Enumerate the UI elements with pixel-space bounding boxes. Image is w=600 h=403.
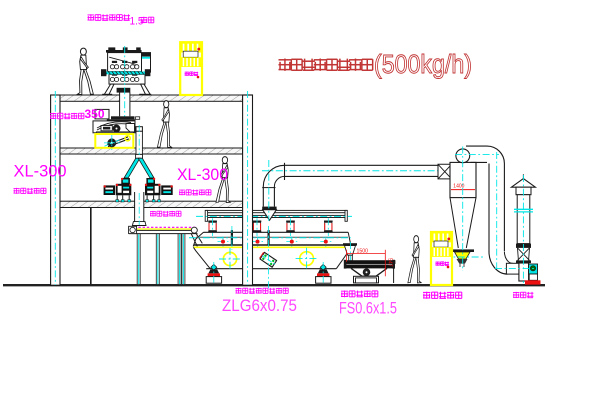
svg-text:XL-300: XL-300 xyxy=(177,166,228,184)
svg-text:FS0.6x1.5: FS0.6x1.5 xyxy=(339,300,397,318)
svg-text:1500: 1500 xyxy=(357,248,369,254)
svg-text:(500kg/h): (500kg/h) xyxy=(374,51,472,79)
svg-text:547: 547 xyxy=(387,258,393,267)
svg-text:350: 350 xyxy=(85,109,105,121)
svg-text:ZLG6x0.75: ZLG6x0.75 xyxy=(222,297,297,315)
svg-text:XL-300: XL-300 xyxy=(14,163,67,181)
